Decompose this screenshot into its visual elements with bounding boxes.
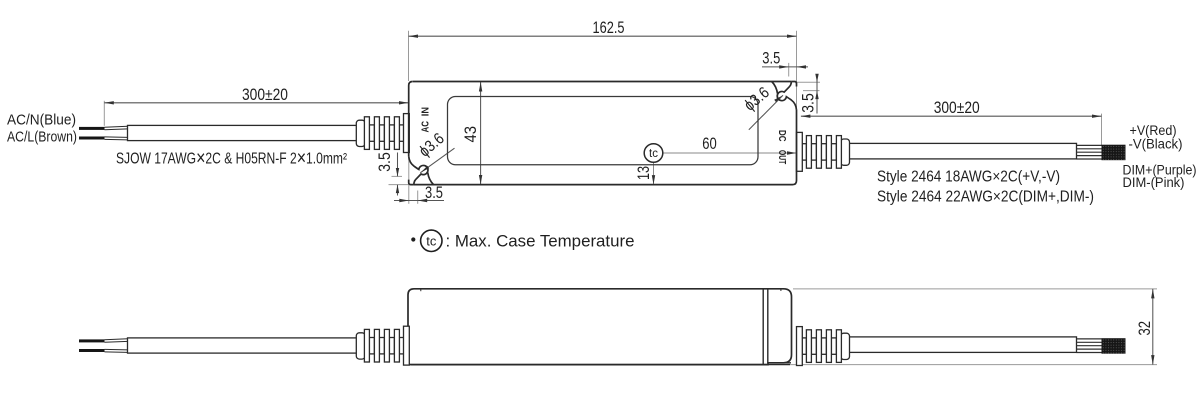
- svg-text:3.5: 3.5: [762, 49, 780, 68]
- svg-text:: Max. Case Temperature: : Max. Case Temperature: [446, 233, 635, 251]
- svg-text:13: 13: [634, 166, 653, 180]
- svg-text:AC/N(Blue): AC/N(Blue): [7, 111, 76, 128]
- svg-text:AC/L(Brown): AC/L(Brown): [7, 128, 77, 145]
- svg-text:60: 60: [702, 134, 717, 153]
- svg-text:300±20: 300±20: [934, 98, 980, 117]
- svg-text:Style 2464 22AWG×2C(DIM+,DIM-): Style 2464 22AWG×2C(DIM+,DIM-): [877, 188, 1094, 205]
- svg-text:SJOW 17AWG×2C & H05RN-F 2×1.0m: SJOW 17AWG×2C & H05RN-F 2×1.0mm²: [116, 147, 347, 170]
- svg-text:OUT: OUT: [776, 150, 787, 164]
- svg-text:-V(Black): -V(Black): [1129, 136, 1183, 152]
- svg-text:tc: tc: [649, 148, 658, 160]
- svg-text:162.5: 162.5: [593, 18, 625, 37]
- svg-text:DIM-(Pink): DIM-(Pink): [1123, 174, 1185, 190]
- svg-text:Style 2464 18AWG×2C(+V,-V): Style 2464 18AWG×2C(+V,-V): [877, 168, 1060, 185]
- svg-text:32: 32: [1135, 321, 1154, 336]
- svg-text:IN: IN: [420, 107, 431, 116]
- svg-text:3.5: 3.5: [375, 152, 394, 172]
- svg-text:AC: AC: [420, 121, 431, 133]
- svg-text:43: 43: [461, 126, 480, 143]
- svg-text:DC: DC: [776, 130, 787, 142]
- svg-text:300±20: 300±20: [242, 85, 288, 104]
- svg-text:tc: tc: [426, 234, 437, 249]
- svg-text:3.5: 3.5: [799, 93, 818, 113]
- svg-text:3.5: 3.5: [425, 183, 443, 202]
